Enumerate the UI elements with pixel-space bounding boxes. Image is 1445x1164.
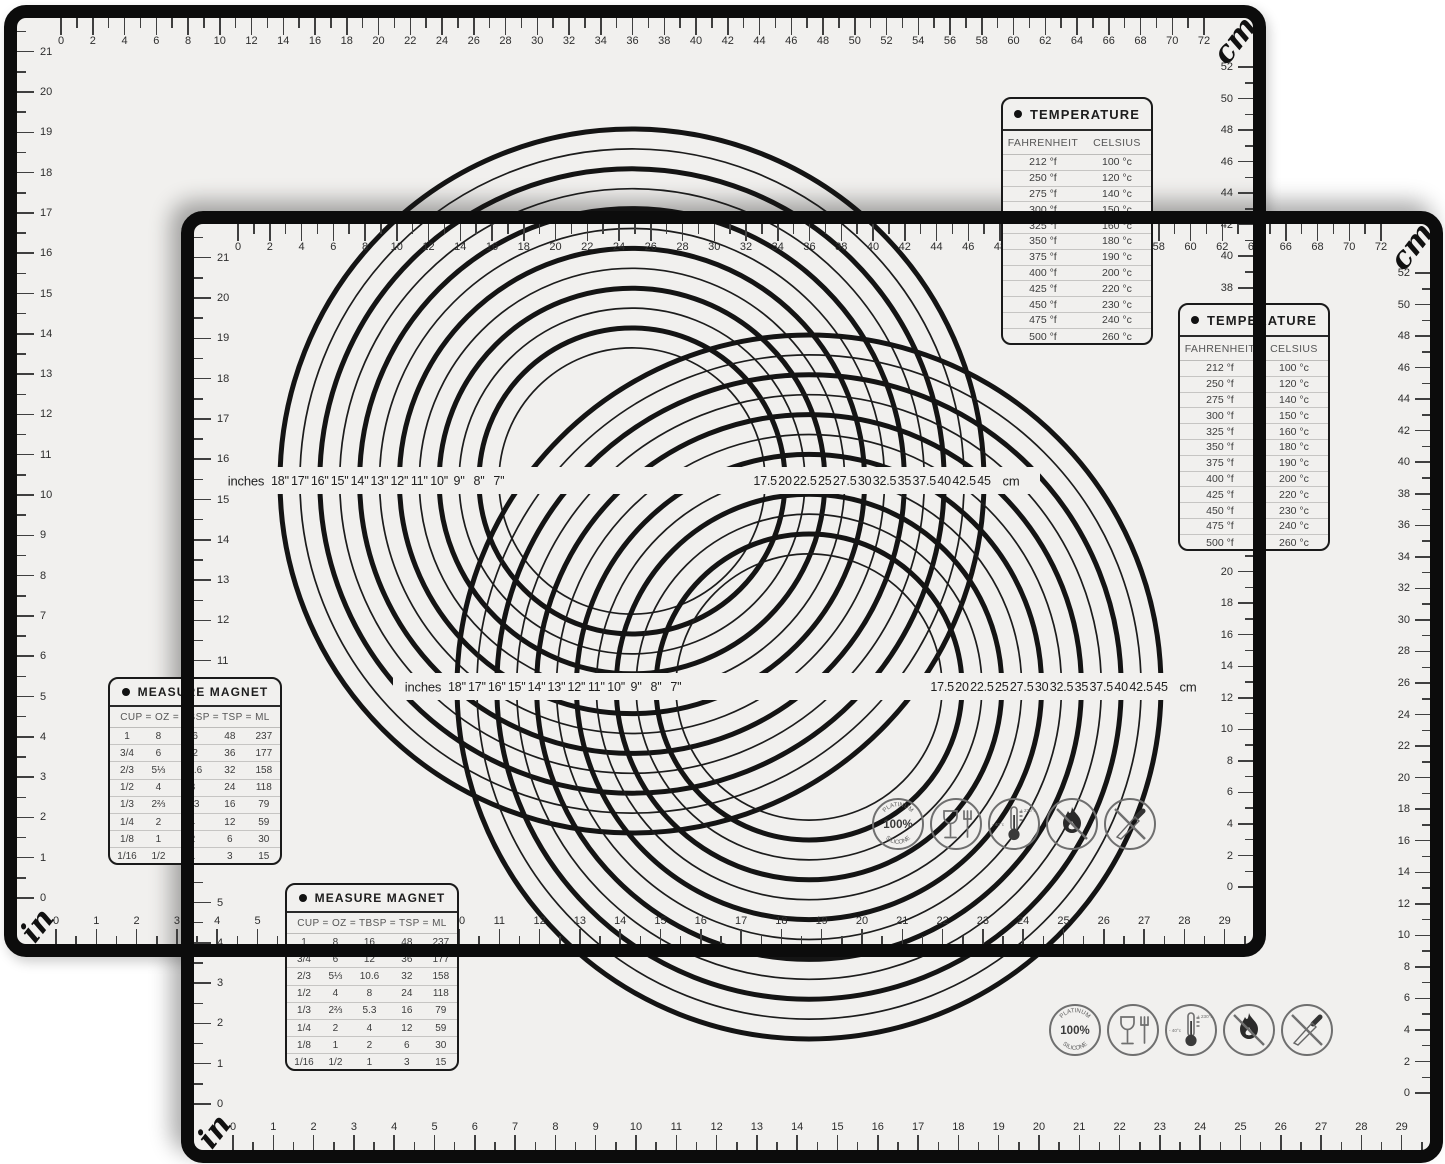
- in-ruler-tick: [942, 929, 944, 944]
- measure-value: 3: [212, 851, 248, 862]
- cm-ruler-number: 8: [352, 240, 378, 254]
- fahrenheit-value: 250 °f: [1003, 172, 1083, 184]
- in-ruler-number: 3: [341, 1120, 367, 1134]
- certification-icons-row: PLATINUM 100% SILICONE - 40°c + 230°c: [1049, 1004, 1333, 1056]
- circle-diameter-label-cm: 32.5: [1050, 680, 1074, 694]
- in-side-ruler-tick: [17, 897, 34, 899]
- cm-ruler-tick: [410, 18, 412, 35]
- cm-side-ruler-tick: [1415, 525, 1430, 527]
- in-ruler-tick: [962, 936, 964, 944]
- in-side-ruler-number: 5: [217, 896, 243, 910]
- in-ruler-number: 14: [607, 914, 633, 928]
- in-ruler-number: 19: [809, 914, 835, 928]
- celsius-value: 100 °c: [1260, 362, 1328, 374]
- in-ruler-tick: [434, 1135, 436, 1150]
- in-ruler-tick: [700, 929, 702, 944]
- cm-side-ruler-tick: [1422, 603, 1430, 605]
- circle-diameter-label-cm: 42.5: [952, 474, 976, 488]
- cm-side-ruler-number: 48: [1207, 123, 1233, 137]
- cm-ruler-tick: [1203, 18, 1205, 35]
- cm-side-ruler-tick: [1415, 493, 1430, 495]
- in-ruler-number: 26: [1268, 1120, 1294, 1134]
- in-side-ruler-tick: [194, 519, 203, 521]
- cm-ruler-number: 12: [239, 34, 265, 48]
- measure-columns-text: CUP = OZ = TBSP = TSP = ML: [287, 918, 457, 929]
- cm-side-ruler-tick: [1238, 66, 1253, 68]
- cm-ruler-tick: [1222, 224, 1224, 241]
- cm-ruler-tick: [933, 18, 935, 28]
- temperature-row: 450 °f230 °c: [1003, 297, 1151, 313]
- in-ruler-tick: [232, 1135, 234, 1150]
- cm-ruler-number: 26: [638, 240, 664, 254]
- measure-value: 158: [248, 765, 280, 776]
- cm-side-ruler-tick: [1415, 588, 1430, 590]
- cm-ruler-tick: [1206, 224, 1208, 234]
- temperature-row: 475 °f240 °c: [1180, 519, 1328, 535]
- in-side-ruler-tick: [194, 922, 203, 924]
- cm-ruler-number: 16: [302, 34, 328, 48]
- in-ruler-number: 28: [1171, 914, 1197, 928]
- cm-side-ruler-tick: [1245, 114, 1253, 116]
- in-side-ruler-number: 1: [40, 851, 66, 865]
- cm-side-ruler-number: 32: [1384, 581, 1410, 595]
- in-ruler-tick: [575, 1142, 577, 1150]
- in-side-ruler-tick: [194, 418, 211, 420]
- celsius-value: 160 °c: [1083, 220, 1151, 232]
- in-side-ruler-number: 21: [217, 251, 243, 265]
- measure-value: 1/2: [144, 851, 173, 862]
- cm-ruler-number: 16: [479, 240, 505, 254]
- temperature-row: 300 °f150 °c: [1180, 408, 1328, 424]
- in-ruler-tick: [313, 1135, 315, 1150]
- in-ruler-tick: [1184, 929, 1186, 944]
- in-ruler-tick: [615, 1142, 617, 1150]
- in-ruler-number: 24: [1187, 1120, 1213, 1134]
- in-ruler-number: 29: [1389, 1120, 1415, 1134]
- cm-ruler-number: 64: [1064, 34, 1090, 48]
- cm-ruler-tick: [76, 18, 78, 28]
- in-ruler-tick: [273, 1135, 275, 1150]
- in-side-ruler-number: 19: [40, 125, 66, 139]
- cm-side-ruler-tick: [1245, 681, 1253, 683]
- cm-side-ruler-tick: [1245, 839, 1253, 841]
- measure-value: 30: [248, 834, 280, 845]
- cm-side-ruler-tick: [1422, 1077, 1430, 1079]
- in-ruler-number: 2: [124, 914, 150, 928]
- cm-side-ruler-number: 12: [1384, 897, 1410, 911]
- circle-diameter-label-in: 17'': [291, 474, 309, 488]
- in-side-ruler-tick: [194, 358, 203, 360]
- cm-ruler-number: 2: [257, 240, 283, 254]
- celsius-value: 180 °c: [1083, 235, 1151, 247]
- in-ruler-number: 16: [865, 1120, 891, 1134]
- in-side-ruler-tick: [17, 212, 34, 214]
- cm-side-ruler-number: 10: [1207, 722, 1233, 736]
- cm-ruler-tick: [698, 224, 700, 234]
- cm-ruler-tick: [219, 18, 221, 35]
- in-ruler-tick: [740, 929, 742, 944]
- cm-ruler-tick: [475, 224, 477, 234]
- in-side-ruler-tick: [17, 776, 34, 778]
- in-side-ruler-tick: [17, 373, 34, 375]
- cm-ruler-tick: [777, 224, 779, 241]
- in-ruler-number: 11: [663, 1120, 689, 1134]
- cm-side-ruler-tick: [1422, 288, 1430, 290]
- cm-ruler-tick: [187, 18, 189, 35]
- cm-ruler-number: 14: [447, 240, 473, 254]
- baking-mat-front: inches18''4517''42.516''4015''37.514''35…: [181, 211, 1443, 1163]
- in-ruler-tick: [1143, 929, 1145, 944]
- cm-ruler-tick: [364, 224, 366, 241]
- cm-ruler-tick: [714, 224, 716, 241]
- celsius-value: 200 °c: [1260, 473, 1328, 485]
- measure-value: 10.6: [173, 765, 212, 776]
- measure-value: 5.3: [350, 1005, 389, 1016]
- cm-ruler-tick: [727, 18, 729, 35]
- in-ruler-tick: [897, 1142, 899, 1150]
- in-side-ruler-number: 18: [217, 372, 243, 386]
- circle-diameter-label-in: 16'': [311, 474, 329, 488]
- cm-ruler-tick: [537, 18, 539, 35]
- cm-side-ruler-number: 8: [1384, 960, 1410, 974]
- circle-diameter-label-cm: 27.5: [1010, 680, 1034, 694]
- fahrenheit-value: 475 °f: [1003, 314, 1083, 326]
- cm-ruler-tick: [333, 224, 335, 241]
- platinum-silicone-badge-icon: PLATINUM 100% SILICONE: [872, 798, 924, 850]
- cm-ruler-number: 26: [461, 34, 487, 48]
- cm-ruler-tick: [412, 224, 414, 234]
- in-ruler-tick: [454, 1142, 456, 1150]
- in-side-ruler-tick: [17, 293, 34, 295]
- cm-ruler-tick: [729, 224, 731, 234]
- fahrenheit-value: 325 °f: [1003, 220, 1083, 232]
- cm-ruler-number: 34: [765, 240, 791, 254]
- circle-diameter-label-in: 9'': [454, 474, 465, 488]
- cm-ruler-tick: [235, 18, 237, 28]
- measure-value: 8: [350, 988, 389, 999]
- in-side-ruler-number: 8: [40, 569, 66, 583]
- cm-ruler-tick: [285, 224, 287, 234]
- in-ruler-tick: [680, 936, 682, 944]
- cm-ruler-number: 44: [747, 34, 773, 48]
- cm-side-ruler-tick: [1415, 840, 1430, 842]
- bullet-dot-icon: [1014, 110, 1022, 118]
- cm-side-ruler-number: 28: [1384, 644, 1410, 658]
- in-side-ruler-tick: [194, 640, 203, 642]
- cm-side-ruler-number: 40: [1384, 455, 1410, 469]
- measure-row: 1/161/21315: [287, 1054, 457, 1071]
- cm-ruler-tick: [171, 18, 173, 28]
- cm-ruler-tick: [473, 18, 475, 35]
- in-ruler-tick: [1159, 1135, 1161, 1150]
- measure-value: 1/16: [287, 1057, 321, 1068]
- in-side-ruler-number: 0: [217, 1097, 243, 1111]
- cm-ruler-number: 52: [874, 34, 900, 48]
- in-side-ruler-tick: [17, 273, 26, 275]
- in-ruler-tick: [55, 929, 57, 944]
- in-ruler-tick: [796, 1135, 798, 1150]
- in-ruler-tick: [1401, 1135, 1403, 1150]
- cm-ruler-tick: [380, 224, 382, 234]
- cm-ruler-number: 62: [1209, 240, 1235, 254]
- measure-row: 2/35⅓10.632158: [287, 968, 457, 985]
- circle-diameter-label-in: 15'': [508, 680, 526, 694]
- cm-ruler-number: 22: [574, 240, 600, 254]
- cm-ruler-tick: [872, 224, 874, 241]
- measure-value: 1/2: [110, 782, 144, 793]
- in-ruler-tick: [555, 1135, 557, 1150]
- circle-diameter-label-cm: 17.5: [930, 680, 954, 694]
- measure-value: 118: [248, 782, 280, 793]
- in-side-ruler-tick: [194, 660, 211, 662]
- cm-ruler-tick: [791, 18, 793, 35]
- cm-side-ruler-tick: [1238, 192, 1253, 194]
- cm-side-ruler-number: 12: [1207, 691, 1233, 705]
- cm-ruler-tick: [968, 224, 970, 241]
- in-ruler-number: 19: [986, 1120, 1012, 1134]
- measure-row: 1/24824118: [287, 986, 457, 1003]
- in-ruler-tick: [922, 936, 924, 944]
- in-side-ruler-number: 13: [40, 367, 66, 381]
- measure-value: 1/3: [110, 799, 144, 810]
- circle-diameter-label-cm: 37.5: [1090, 680, 1114, 694]
- measure-value: 6: [212, 834, 248, 845]
- cm-side-ruler-tick: [1245, 713, 1253, 715]
- svg-text:100%: 100%: [883, 819, 912, 831]
- temperature-row: 425 °f220 °c: [1180, 487, 1328, 503]
- measure-value: 12: [212, 817, 248, 828]
- in-side-ruler-tick: [17, 353, 26, 355]
- cm-ruler-tick: [1124, 18, 1126, 28]
- cm-ruler-tick: [568, 18, 570, 35]
- in-side-ruler-tick: [17, 716, 26, 718]
- in-ruler-tick: [1022, 929, 1024, 944]
- cm-ruler-tick: [679, 18, 681, 28]
- in-ruler-tick: [75, 936, 77, 944]
- cm-ruler-tick: [140, 18, 142, 28]
- measure-value: 12: [350, 954, 389, 965]
- icon-art: [1109, 1006, 1157, 1054]
- cm-ruler-tick: [1174, 224, 1176, 234]
- cm-ruler-tick: [1253, 224, 1255, 241]
- measure-value: 48: [389, 937, 425, 948]
- measure-value: 12: [173, 748, 212, 759]
- cm-ruler-tick: [539, 224, 541, 234]
- cm-side-ruler-tick: [1415, 1029, 1430, 1031]
- circle-diameter-label-in: 15'': [331, 474, 349, 488]
- cm-side-ruler-tick: [1422, 887, 1430, 889]
- cm-side-ruler-tick: [1422, 698, 1430, 700]
- measure-value: 4: [350, 1023, 389, 1034]
- in-side-ruler-number: 12: [217, 613, 243, 627]
- cm-side-ruler-tick: [1415, 619, 1430, 621]
- cm-ruler-tick: [1285, 224, 1287, 241]
- cm-side-ruler-tick: [1415, 745, 1430, 747]
- in-ruler-tick: [821, 929, 823, 944]
- in-side-ruler-tick: [17, 313, 26, 315]
- circle-diameter-label-in: 7'': [670, 680, 681, 694]
- cm-ruler-tick: [825, 224, 827, 234]
- measure-value: 1/4: [287, 1023, 321, 1034]
- in-ruler-tick: [1083, 936, 1085, 944]
- in-ruler-number: 22: [930, 914, 956, 928]
- fahrenheit-value: 400 °f: [1003, 267, 1083, 279]
- cm-ruler-tick: [888, 224, 890, 234]
- no-knife-icon: [1281, 1004, 1333, 1056]
- in-side-ruler-tick: [194, 962, 203, 964]
- in-ruler-tick: [1099, 1142, 1101, 1150]
- icon-art: [1225, 1006, 1273, 1054]
- in-ruler-number: 15: [648, 914, 674, 928]
- measure-value: 16: [350, 937, 389, 948]
- cm-side-ruler-tick: [1422, 761, 1430, 763]
- cm-ruler-tick: [743, 18, 745, 28]
- in-side-ruler-number: 6: [40, 649, 66, 663]
- cm-side-ruler-number: 46: [1384, 361, 1410, 375]
- measure-row: 3/461236177: [287, 951, 457, 968]
- svg-text:+ 230°c: + 230°c: [1197, 1014, 1213, 1019]
- cm-ruler-tick: [283, 18, 285, 35]
- cm-ruler-number: 30: [701, 240, 727, 254]
- fahrenheit-value: 450 °f: [1003, 299, 1083, 311]
- cm-ruler-tick: [1380, 224, 1382, 241]
- in-ruler-tick: [716, 1135, 718, 1150]
- in-side-ruler-number: 0: [40, 891, 66, 905]
- cm-side-ruler-tick: [1415, 651, 1430, 653]
- cm-ruler-tick: [981, 18, 983, 35]
- fahrenheit-value: 275 °f: [1003, 188, 1083, 200]
- cm-ruler-number: 40: [683, 34, 709, 48]
- measure-value: 36: [389, 954, 425, 965]
- cm-side-ruler-number: 34: [1384, 550, 1410, 564]
- cm-ruler-tick: [394, 18, 396, 28]
- in-side-ruler-tick: [17, 91, 34, 93]
- celsius-value: 230 °c: [1260, 505, 1328, 517]
- svg-text:- 40°c: - 40°c: [992, 822, 1005, 827]
- cm-ruler-tick: [523, 224, 525, 241]
- in-ruler-tick: [736, 1142, 738, 1150]
- circle-diameter-label-cm: 22.5: [793, 474, 817, 488]
- in-ruler-tick: [1079, 1135, 1081, 1150]
- in-side-ruler-number: 5: [40, 690, 66, 704]
- measure-value: 36: [212, 748, 248, 759]
- cm-ruler-number: 20: [366, 34, 392, 48]
- cm-side-ruler-tick: [1422, 414, 1430, 416]
- column-celsius: CELSIUS: [1260, 343, 1328, 355]
- fahrenheit-value: 300 °f: [1003, 204, 1083, 216]
- in-ruler-tick: [1043, 936, 1045, 944]
- in-side-ruler-number: 18: [40, 166, 66, 180]
- cm-ruler-tick: [695, 18, 697, 35]
- cm-ruler-tick: [301, 224, 303, 241]
- cm-ruler-tick: [775, 18, 777, 28]
- cm-ruler-tick: [1076, 18, 1078, 35]
- celsius-value: 150 °c: [1083, 204, 1151, 216]
- cm-ruler-number: 64: [1241, 240, 1267, 254]
- icon-art: [1048, 800, 1096, 848]
- measure-row: 1/32⅔5.31679: [287, 1003, 457, 1020]
- in-ruler-tick: [257, 929, 259, 944]
- cm-ruler-number: 2: [80, 34, 106, 48]
- in-ruler-tick: [1244, 936, 1246, 944]
- cm-ruler-number: 10: [384, 240, 410, 254]
- measure-value: 16: [173, 731, 212, 742]
- cm-side-ruler-number: 42: [1384, 424, 1410, 438]
- cm-ruler-number: 60: [1178, 240, 1204, 254]
- in-ruler-number: 3: [164, 914, 190, 928]
- circle-guide-unit-inches: inches: [405, 680, 441, 695]
- cm-ruler-number: 46: [955, 240, 981, 254]
- in-side-ruler-tick: [17, 817, 34, 819]
- circle-diameter-label-in: 7'': [493, 474, 504, 488]
- measure-table-title: MEASURE MAGNET: [287, 885, 457, 913]
- cm-side-ruler-tick: [1238, 98, 1253, 100]
- celsius-value: 160 °c: [1260, 426, 1328, 438]
- measure-row: 181648237: [110, 728, 280, 745]
- cm-ruler-tick: [745, 224, 747, 241]
- in-ruler-tick: [902, 929, 904, 944]
- cm-ruler-tick: [856, 224, 858, 234]
- measure-value: 6: [389, 1040, 425, 1051]
- in-ruler-number: 5: [245, 914, 271, 928]
- measure-value: 1/8: [110, 834, 144, 845]
- in-side-ruler-tick: [194, 398, 203, 400]
- in-side-ruler-number: 16: [40, 246, 66, 260]
- circle-diameter-label-in: 11'': [588, 680, 605, 694]
- in-ruler-tick: [514, 1135, 516, 1150]
- celsius-value: 220 °c: [1260, 489, 1328, 501]
- in-side-ruler-tick: [194, 257, 211, 259]
- food-safe-icon: [1107, 1004, 1159, 1056]
- in-ruler-number: 6: [462, 1120, 488, 1134]
- cm-ruler-number: 14: [270, 34, 296, 48]
- in-ruler-tick: [1341, 1142, 1343, 1150]
- cm-side-ruler-number: 14: [1207, 659, 1233, 673]
- measure-value: 48: [212, 731, 248, 742]
- in-ruler-number: 23: [1147, 1120, 1173, 1134]
- in-side-ruler-number: 20: [40, 85, 66, 99]
- in-ruler-tick: [1038, 1135, 1040, 1150]
- in-side-ruler-tick: [17, 152, 26, 154]
- svg-text:PLATINUM: PLATINUM: [1059, 1008, 1091, 1020]
- cm-ruler-tick: [587, 224, 589, 241]
- in-side-ruler-tick: [17, 575, 34, 577]
- cm-ruler-tick: [664, 18, 666, 35]
- cm-ruler-number: 36: [797, 240, 823, 254]
- cm-side-ruler-tick: [1422, 793, 1430, 795]
- in-ruler-number: 13: [567, 914, 593, 928]
- in-ruler-tick: [756, 1135, 758, 1150]
- in-side-ruler-number: 2: [40, 810, 66, 824]
- fahrenheit-value: 475 °f: [1180, 520, 1260, 532]
- in-ruler-number: 21: [1066, 1120, 1092, 1134]
- celsius-value: 140 °c: [1260, 394, 1328, 406]
- celsius-value: 100 °c: [1083, 156, 1151, 168]
- in-side-ruler-tick: [194, 902, 211, 904]
- temperature-table-title: TEMPERATURE: [1003, 99, 1151, 131]
- in-side-ruler-tick: [194, 942, 211, 944]
- bullet-dot-icon: [1191, 316, 1199, 324]
- measure-value: 2⅔: [144, 799, 173, 810]
- cm-side-ruler-tick: [1422, 919, 1430, 921]
- measure-magnet-table: MEASURE MAGNETCUP = OZ = TBSP = TSP = ML…: [108, 677, 282, 865]
- in-ruler-number: 17: [905, 1120, 931, 1134]
- in-ruler-tick: [333, 1142, 335, 1150]
- temperature-row: 300 °f150 °c: [1003, 202, 1151, 218]
- cm-ruler-number: 66: [1096, 34, 1122, 48]
- in-ruler-tick: [1179, 1142, 1181, 1150]
- in-ruler-tick: [720, 936, 722, 944]
